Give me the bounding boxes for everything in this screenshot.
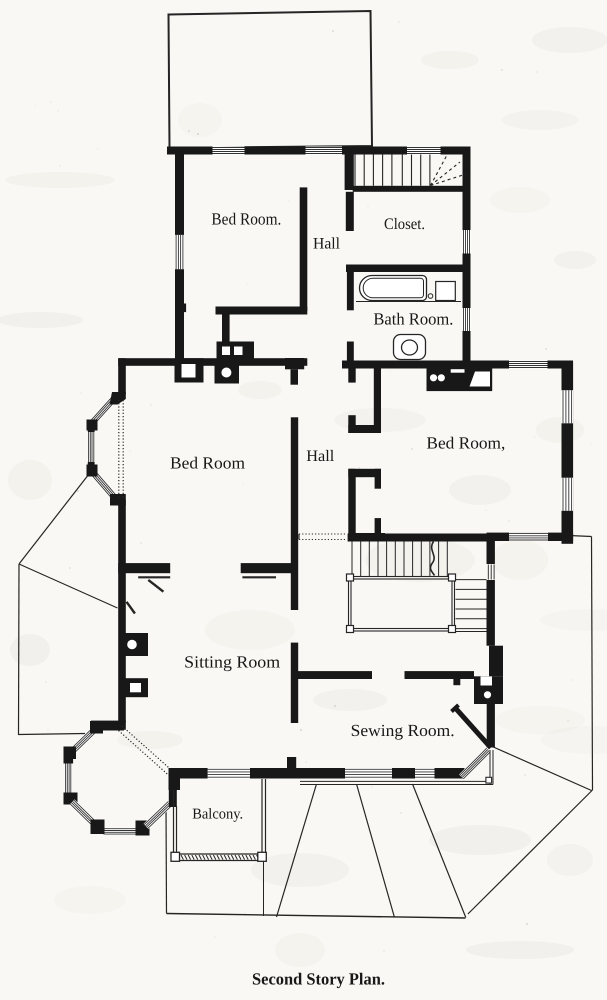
svg-text:Hall: Hall (313, 236, 341, 253)
svg-text:Hall: Hall (306, 448, 335, 465)
svg-text:Balcony.: Balcony. (192, 807, 243, 823)
svg-text:Sitting Room: Sitting Room (184, 653, 280, 672)
svg-text:Sewing Room.: Sewing Room. (351, 721, 455, 740)
svg-text:Bed Room: Bed Room (170, 454, 245, 473)
svg-text:Bed Room.: Bed Room. (211, 210, 281, 229)
svg-text:Closet.: Closet. (384, 216, 425, 233)
svg-text:Bath Room.: Bath Room. (373, 310, 453, 329)
svg-text:Second Story Plan.: Second Story Plan. (252, 970, 385, 989)
svg-text:Bed Room,: Bed Room, (426, 434, 505, 453)
